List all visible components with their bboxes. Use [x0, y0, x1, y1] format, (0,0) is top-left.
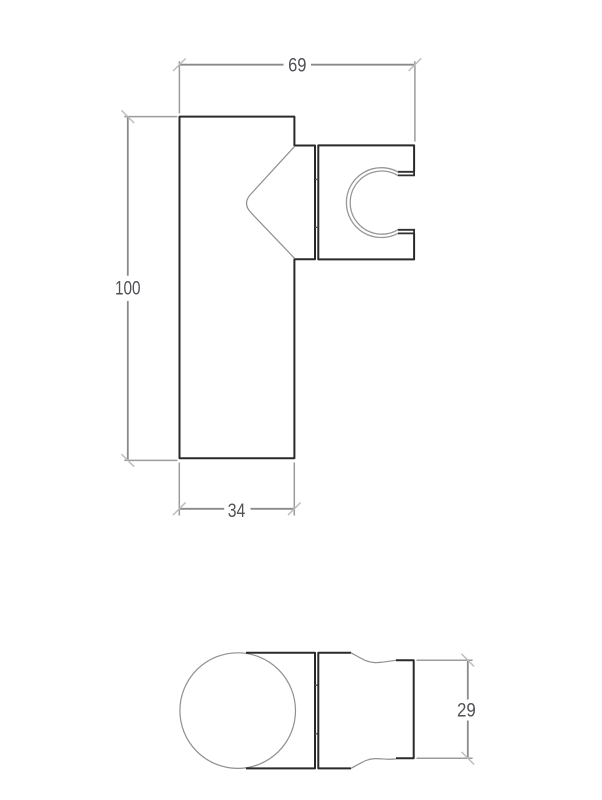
- svg-text:29: 29: [457, 700, 476, 722]
- svg-text:69: 69: [288, 54, 306, 76]
- svg-text:100: 100: [115, 278, 141, 300]
- svg-text:34: 34: [228, 500, 246, 522]
